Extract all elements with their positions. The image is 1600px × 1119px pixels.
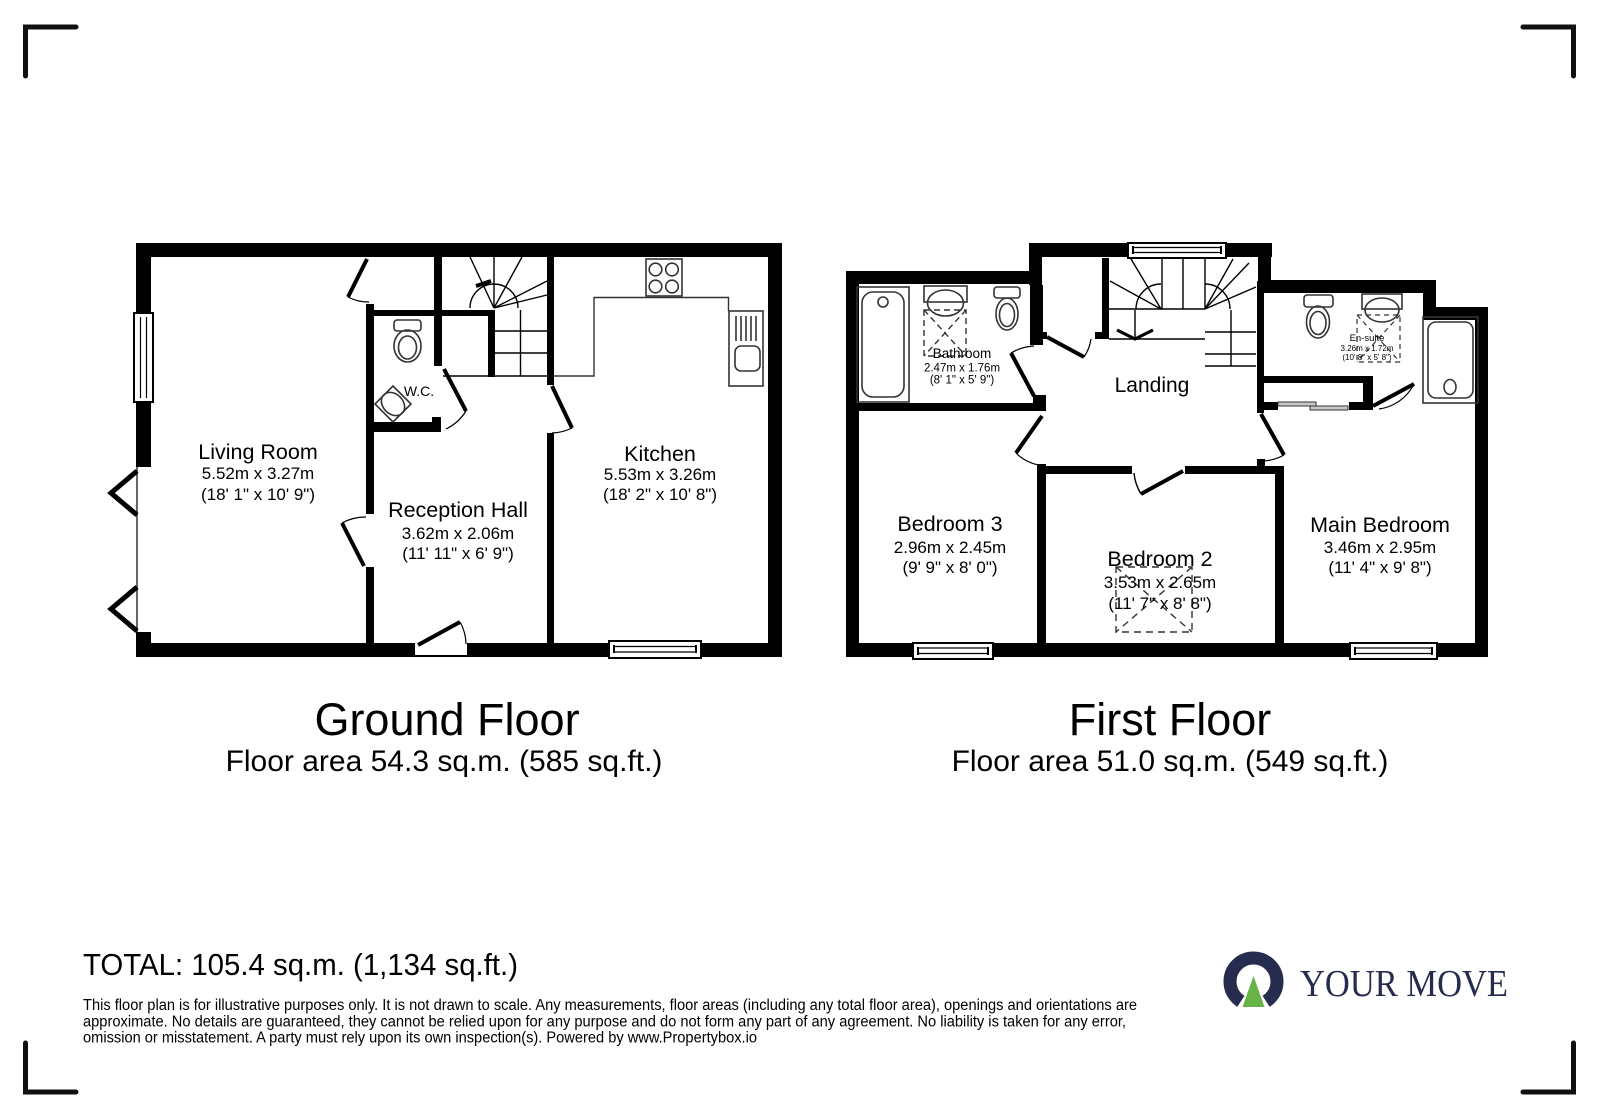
svg-text:(11' 7" x 8' 8"): (11' 7" x 8' 8"): [1108, 594, 1211, 613]
svg-text:3.26m x 1.72m: 3.26m x 1.72m: [1341, 344, 1394, 353]
svg-text:W.C.: W.C.: [404, 383, 434, 399]
svg-text:This floor plan is for illustr: This floor plan is for illustrative purp…: [83, 997, 1137, 1014]
svg-text:Bathroom: Bathroom: [933, 346, 992, 361]
svg-text:(11' 11" x 6' 9"): (11' 11" x 6' 9"): [402, 544, 513, 563]
svg-text:(11' 4" x 9' 8"): (11' 4" x 9' 8"): [1328, 558, 1431, 577]
svg-text:TOTAL: 105.4 sq.m. (1,134 sq.f: TOTAL: 105.4 sq.m. (1,134 sq.ft.): [83, 947, 518, 982]
svg-text:Reception Hall: Reception Hall: [388, 498, 528, 522]
svg-text:3.46m x 2.95m: 3.46m x 2.95m: [1324, 538, 1436, 557]
svg-text:(18' 2" x 10' 8"): (18' 2" x 10' 8"): [603, 485, 717, 504]
svg-text:Main Bedroom: Main Bedroom: [1310, 513, 1450, 537]
svg-text:Floor area 54.3 sq.m. (585 sq.: Floor area 54.3 sq.m. (585 sq.ft.): [226, 745, 663, 778]
svg-text:approximate. No details are gu: approximate. No details are guaranteed, …: [83, 1013, 1126, 1030]
svg-text:2.47m x 1.76m: 2.47m x 1.76m: [924, 363, 1000, 375]
svg-text:(18' 1" x 10' 9"): (18' 1" x 10' 9"): [201, 485, 315, 504]
svg-text:(8' 1" x 5' 9"): (8' 1" x 5' 9"): [930, 375, 994, 387]
svg-text:(9' 9" x 8' 0"): (9' 9" x 8' 0"): [902, 558, 997, 577]
svg-text:First Floor: First Floor: [1069, 694, 1272, 745]
svg-text:3.62m x 2.06m: 3.62m x 2.06m: [402, 524, 514, 543]
svg-text:En-suite: En-suite: [1350, 333, 1385, 344]
svg-text:Floor area 51.0 sq.m. (549 sq.: Floor area 51.0 sq.m. (549 sq.ft.): [952, 745, 1389, 778]
svg-text:2.96m x 2.45m: 2.96m x 2.45m: [894, 538, 1006, 557]
svg-text:Ground Floor: Ground Floor: [314, 694, 579, 745]
svg-text:Living Room: Living Room: [198, 440, 318, 464]
svg-text:YOUR MOVE: YOUR MOVE: [1300, 963, 1508, 1005]
svg-text:Kitchen: Kitchen: [624, 442, 696, 466]
svg-text:5.52m x 3.27m: 5.52m x 3.27m: [202, 464, 314, 483]
svg-text:Bedroom 2: Bedroom 2: [1107, 547, 1212, 571]
svg-text:5.53m x 3.26m: 5.53m x 3.26m: [604, 465, 716, 484]
svg-text:omission or misstatement. A pa: omission or misstatement. A party must r…: [83, 1030, 757, 1047]
svg-text:Landing: Landing: [1115, 374, 1190, 397]
svg-text:3.53m x 2.65m: 3.53m x 2.65m: [1104, 573, 1216, 592]
svg-text:(10' 8" x 5' 8"): (10' 8" x 5' 8"): [1342, 353, 1392, 362]
svg-text:Bedroom 3: Bedroom 3: [897, 512, 1002, 536]
